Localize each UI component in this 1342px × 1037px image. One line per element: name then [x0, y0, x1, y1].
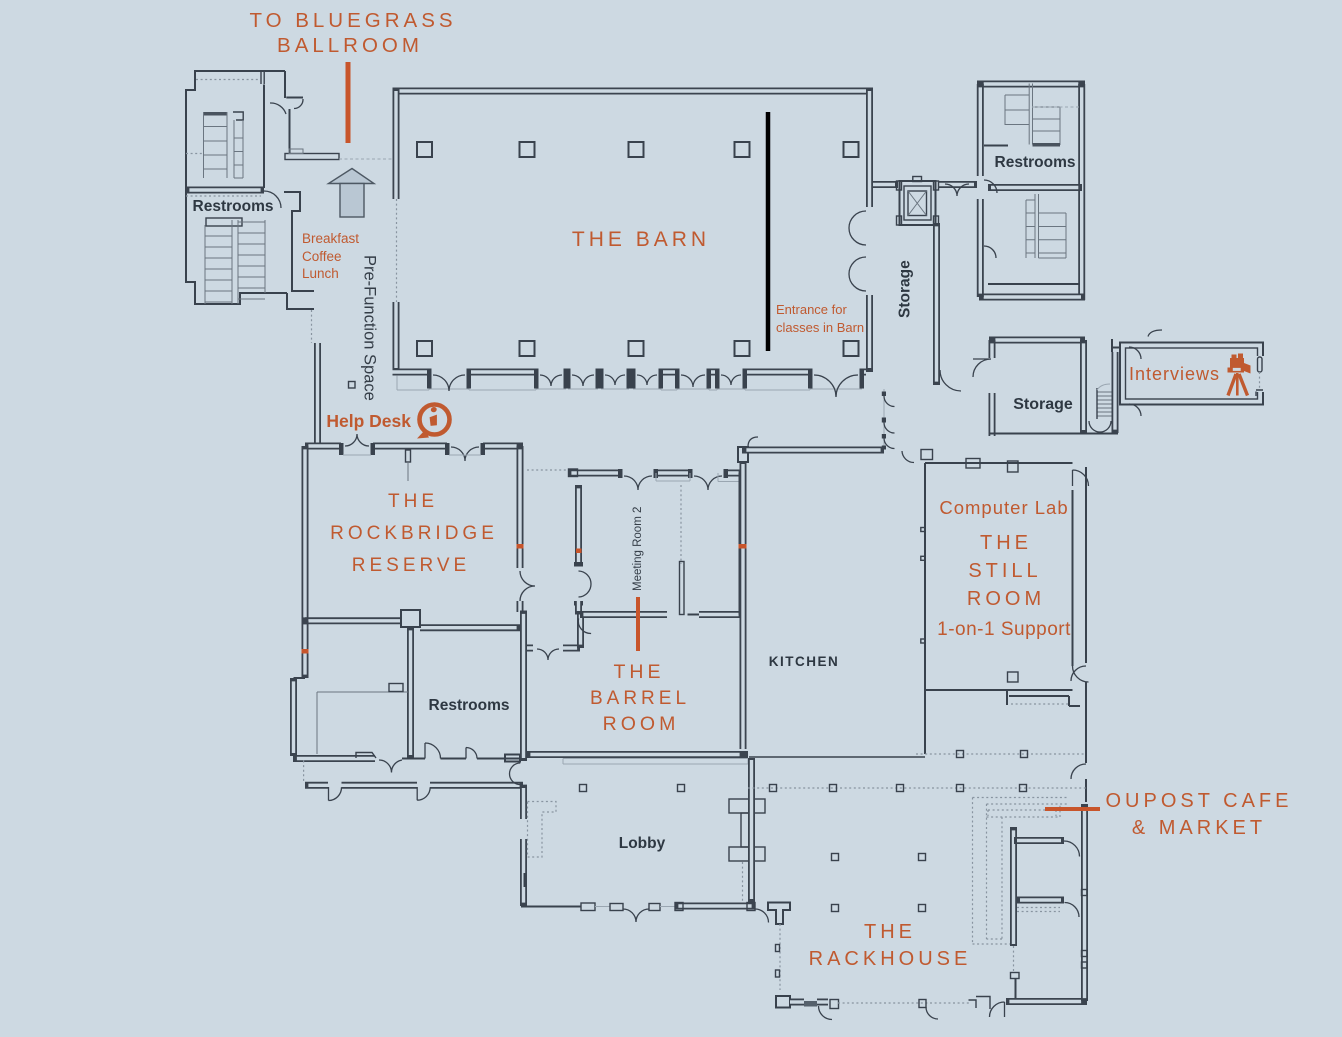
- svg-text:Meeting Room 2: Meeting Room 2: [632, 507, 644, 591]
- svg-text:THE BARN: THE BARN: [572, 228, 710, 251]
- svg-text:& MARKET: & MARKET: [1132, 817, 1266, 839]
- svg-text:ROOM: ROOM: [967, 588, 1045, 610]
- svg-text:ROCKBRIDGE: ROCKBRIDGE: [330, 523, 498, 544]
- svg-text:RESERVE: RESERVE: [352, 555, 470, 576]
- svg-text:Lunch: Lunch: [302, 266, 339, 281]
- svg-text:Coffee: Coffee: [302, 249, 342, 264]
- svg-text:THE: THE: [388, 491, 438, 512]
- svg-text:classes in Barn: classes in Barn: [776, 320, 864, 335]
- svg-text:BALLROOM: BALLROOM: [277, 34, 423, 57]
- svg-text:BARREL: BARREL: [590, 688, 690, 709]
- svg-text:TO BLUEGRASS: TO BLUEGRASS: [249, 9, 456, 32]
- svg-text:Storage: Storage: [897, 260, 914, 318]
- svg-text:RACKHOUSE: RACKHOUSE: [809, 948, 972, 970]
- svg-text:ROOM: ROOM: [603, 713, 680, 735]
- svg-text:Lobby: Lobby: [619, 835, 666, 852]
- svg-text:Restrooms: Restrooms: [995, 154, 1076, 171]
- svg-text:Computer Lab: Computer Lab: [939, 497, 1068, 518]
- svg-text:Storage: Storage: [1013, 396, 1073, 413]
- svg-text:Entrance for: Entrance for: [776, 302, 847, 317]
- svg-text:Restrooms: Restrooms: [193, 198, 274, 215]
- svg-text:1-on-1 Support: 1-on-1 Support: [937, 619, 1071, 640]
- svg-text:STILL: STILL: [968, 560, 1041, 582]
- svg-text:Help Desk: Help Desk: [326, 411, 411, 431]
- svg-text:Pre-Function Space: Pre-Function Space: [361, 255, 379, 401]
- svg-text:OUPOST CAFE: OUPOST CAFE: [1106, 790, 1293, 812]
- svg-text:KITCHEN: KITCHEN: [769, 654, 840, 669]
- svg-text:Breakfast: Breakfast: [302, 231, 359, 246]
- svg-text:THE: THE: [614, 661, 665, 683]
- svg-text:THE: THE: [864, 921, 916, 943]
- svg-text:Interviews: Interviews: [1129, 364, 1220, 384]
- svg-text:Restrooms: Restrooms: [429, 697, 510, 714]
- svg-text:THE: THE: [980, 532, 1032, 554]
